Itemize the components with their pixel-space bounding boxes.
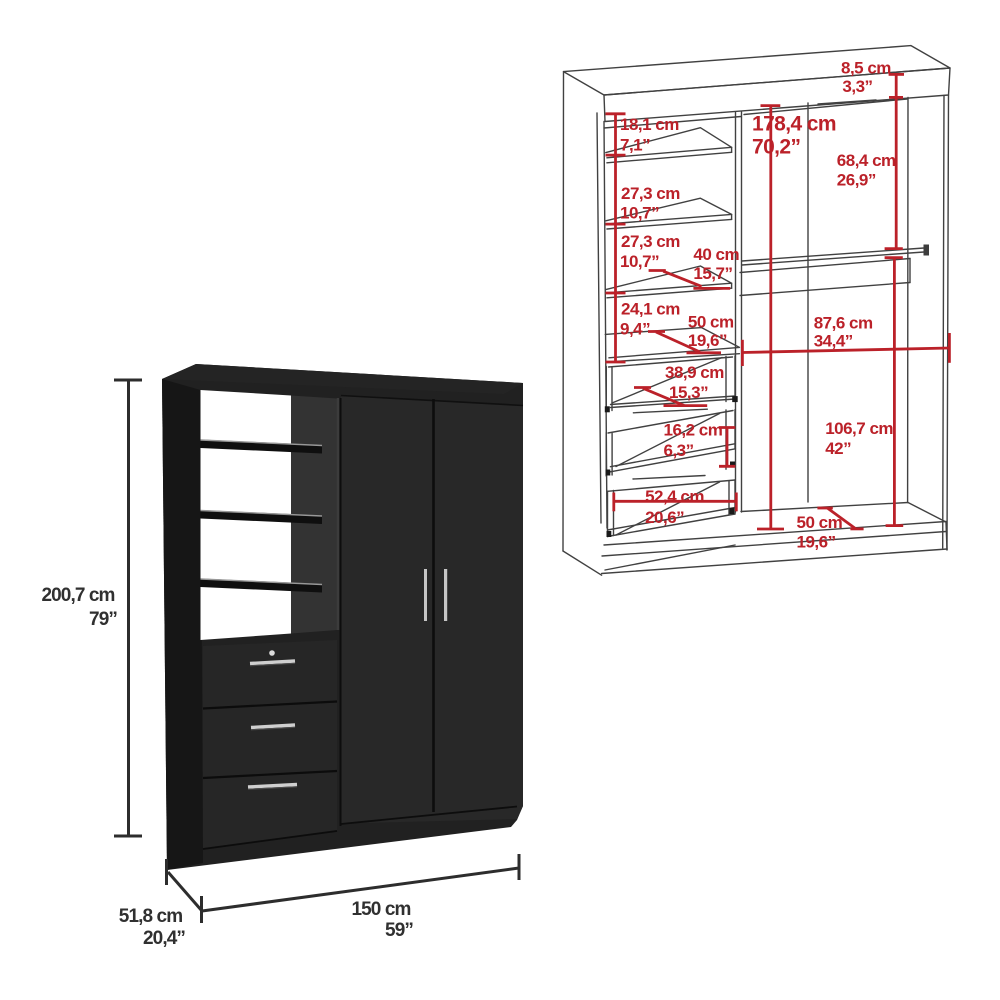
svg-text:10,7”: 10,7” [620,252,659,271]
svg-text:34,4”: 34,4” [814,332,853,351]
svg-text:7,1”: 7,1” [620,136,650,155]
svg-text:18,1 cm: 18,1 cm [620,115,679,134]
svg-text:40 cm: 40 cm [693,245,739,264]
svg-text:16,2 cm: 16,2 cm [664,421,723,440]
svg-text:20,4”: 20,4” [143,928,185,949]
svg-text:27,3 cm: 27,3 cm [621,232,680,251]
svg-text:27,3 cm: 27,3 cm [621,184,680,203]
svg-text:26,9”: 26,9” [837,171,876,190]
svg-text:20,6”: 20,6” [645,508,684,527]
svg-text:19,6”: 19,6” [688,331,727,350]
svg-text:178,4 cm: 178,4 cm [752,113,836,136]
svg-text:79”: 79” [89,609,117,630]
svg-text:42”: 42” [825,439,851,458]
svg-text:50 cm: 50 cm [797,513,843,532]
svg-text:15,7”: 15,7” [693,264,732,283]
svg-text:50 cm: 50 cm [688,313,734,332]
svg-text:38,9 cm: 38,9 cm [665,363,724,382]
svg-text:10,7”: 10,7” [620,204,659,223]
svg-text:200,7 cm: 200,7 cm [41,585,114,606]
svg-text:24,1 cm: 24,1 cm [621,300,680,319]
svg-text:6,3”: 6,3” [664,441,694,460]
svg-text:68,4 cm: 68,4 cm [837,151,896,170]
svg-text:52,4 cm: 52,4 cm [645,487,704,506]
svg-text:87,6 cm: 87,6 cm [814,313,873,332]
svg-text:106,7 cm: 106,7 cm [825,419,893,438]
svg-text:3,3”: 3,3” [842,77,872,96]
svg-text:51,8 cm: 51,8 cm [119,906,182,927]
svg-text:59”: 59” [385,920,413,941]
svg-text:19,6”: 19,6” [797,533,836,552]
svg-text:9,4”: 9,4” [620,319,650,338]
svg-text:150 cm: 150 cm [351,899,410,920]
svg-text:15,3”: 15,3” [669,383,708,402]
svg-text:70,2”: 70,2” [752,136,800,159]
svg-text:8,5 cm: 8,5 cm [841,59,891,78]
